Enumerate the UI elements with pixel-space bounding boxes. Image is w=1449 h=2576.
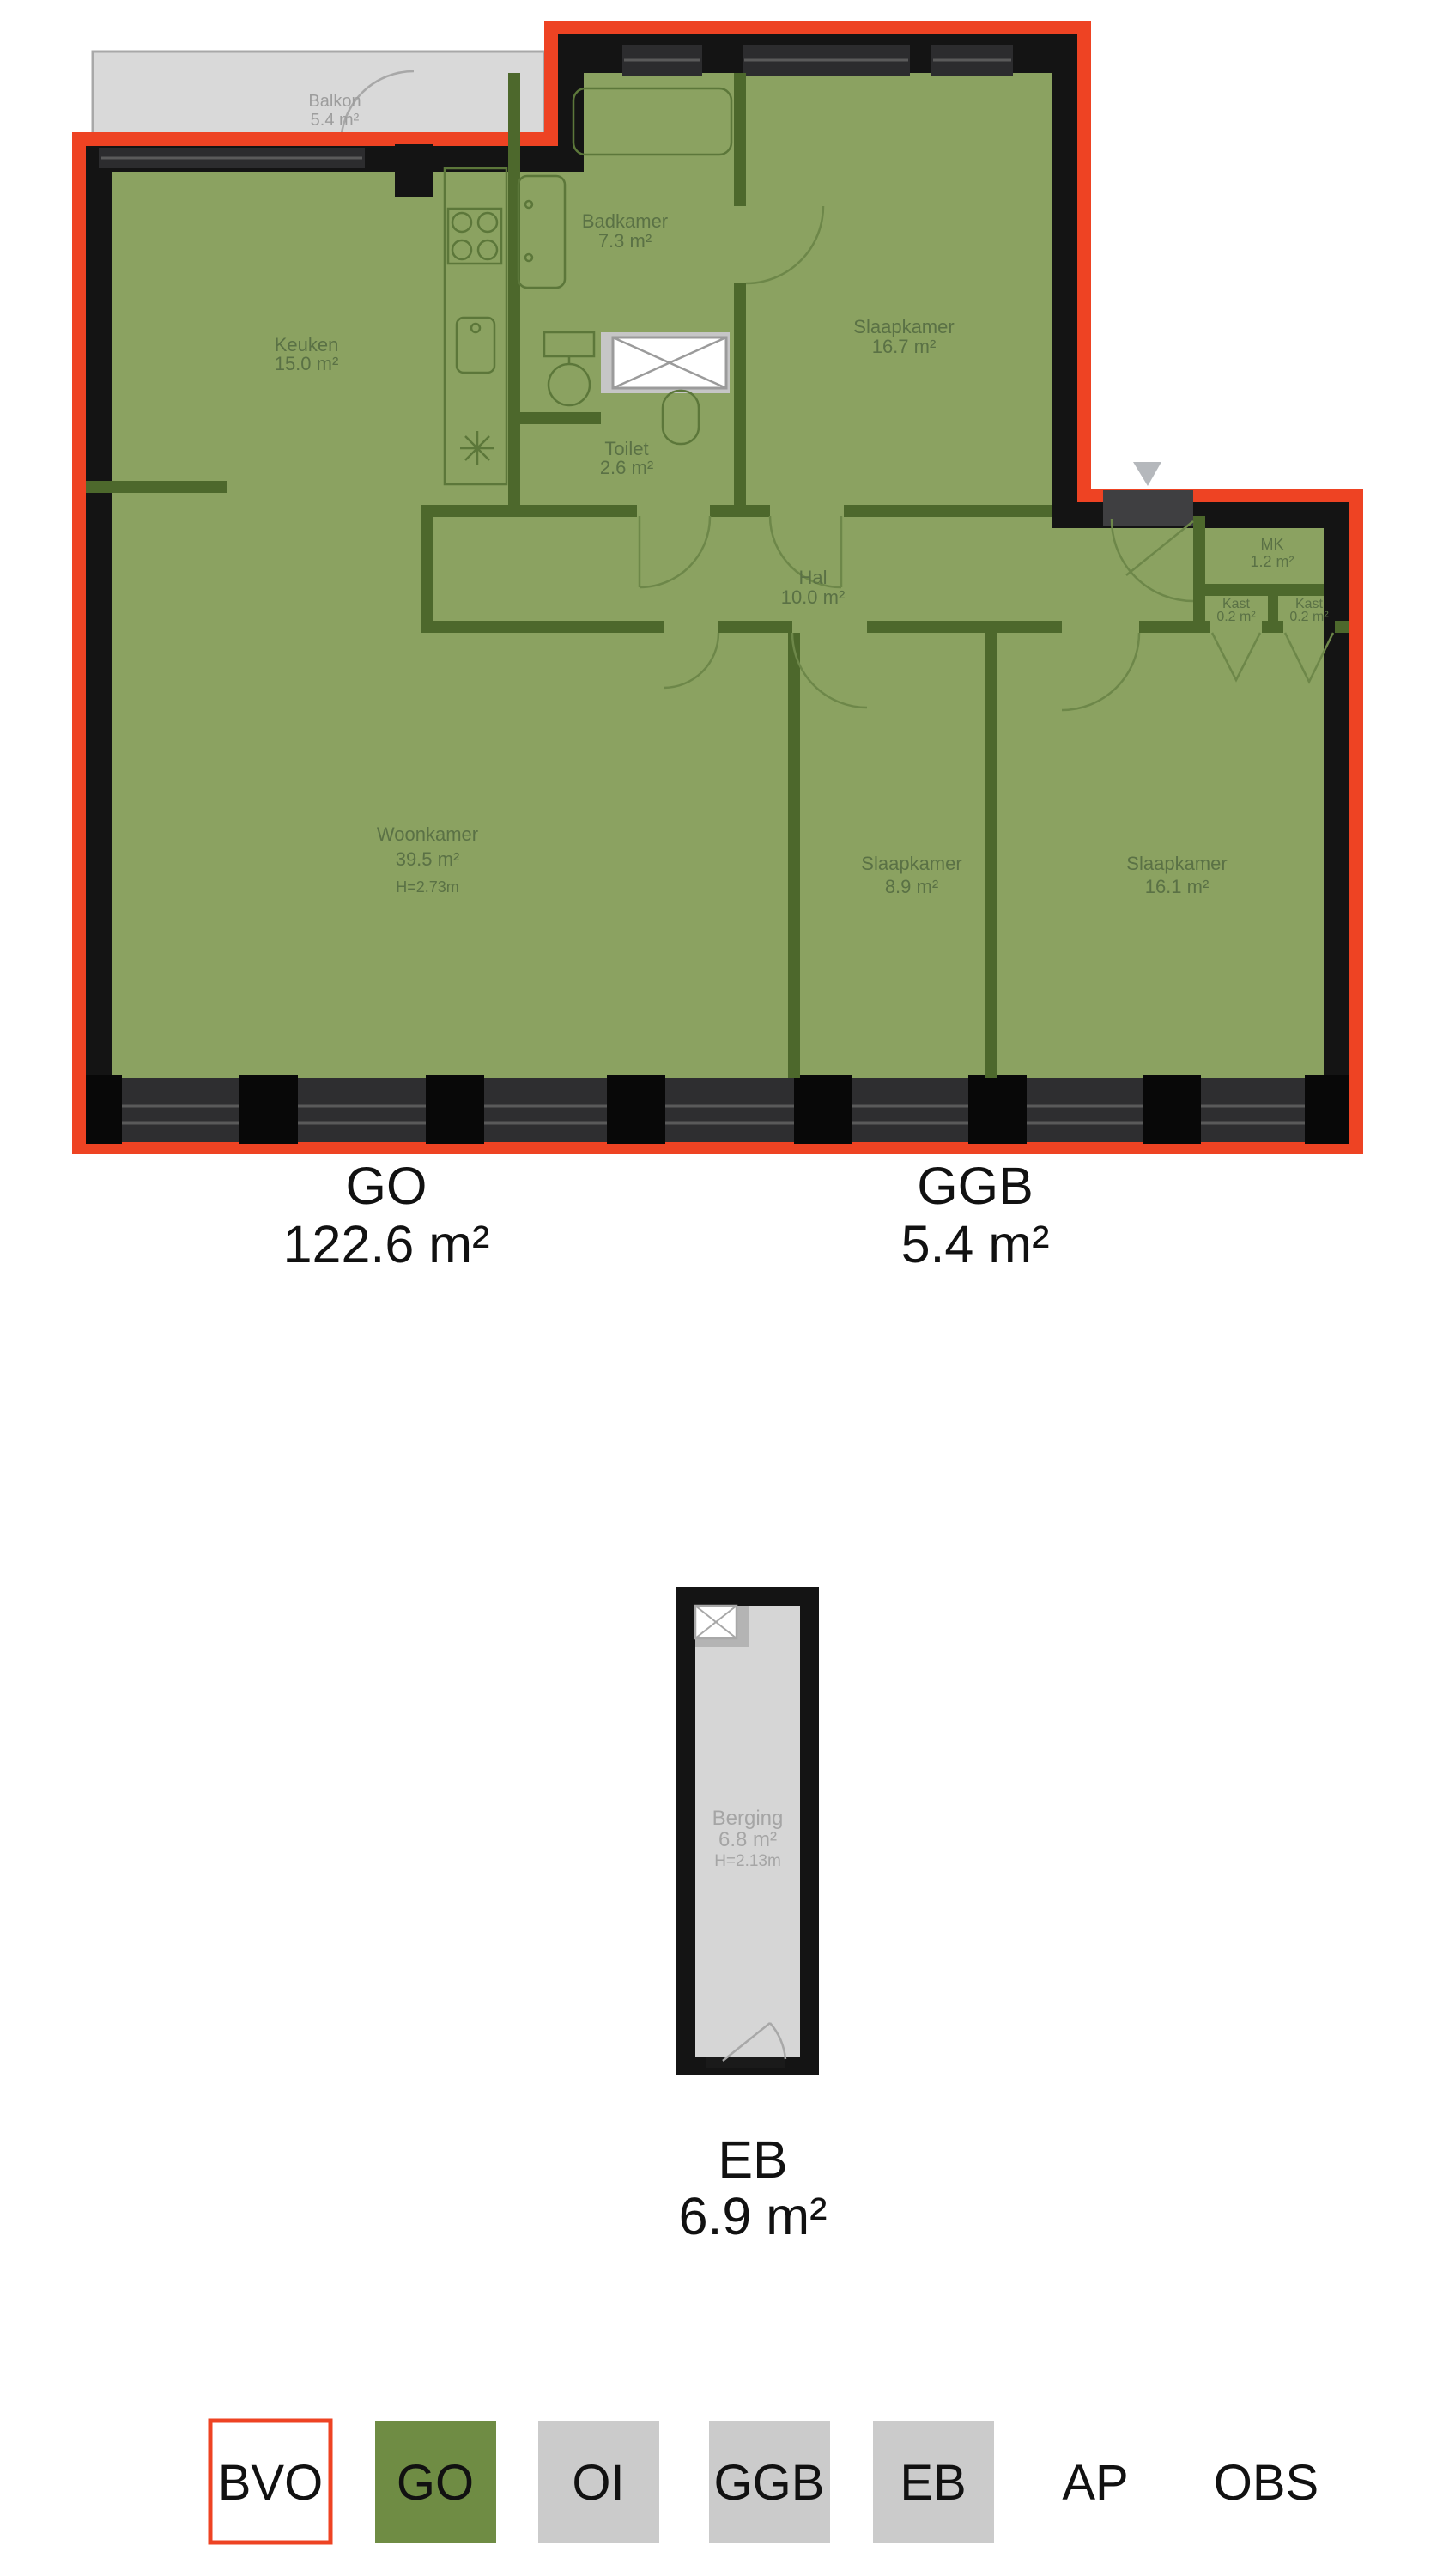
legend-item-ggb[interactable]: GGB xyxy=(709,2421,830,2543)
legend-item-eb[interactable]: EB xyxy=(873,2421,994,2543)
room-slaapkamer3-area: 16.1 m² xyxy=(1145,876,1210,897)
entrance-triangle-icon xyxy=(1133,462,1161,486)
top-windows xyxy=(622,45,1013,76)
total-ggb-code: GGB xyxy=(917,1157,1034,1215)
room-badkamer-area: 7.3 m² xyxy=(598,230,652,252)
total-go-area: 122.6 m² xyxy=(283,1215,490,1273)
room-berging-area: 6.8 m² xyxy=(718,1828,777,1851)
room-mk-area: 1.2 m² xyxy=(1250,553,1294,570)
legend-label-ggb: GGB xyxy=(714,2455,825,2511)
go-area-fill xyxy=(112,73,1324,1115)
room-hal-area: 10.0 m² xyxy=(781,586,846,608)
legend-label-ap: AP xyxy=(1062,2455,1128,2511)
legend-label-eb: EB xyxy=(900,2455,966,2511)
storage-shaft xyxy=(695,1606,749,1647)
room-toilet-area: 2.6 m² xyxy=(600,457,653,478)
room-kast2-area: 0.2 m² xyxy=(1289,610,1329,624)
room-woonkamer-height: H=2.73m xyxy=(396,878,459,896)
legend-item-obs[interactable]: OBS xyxy=(1214,2455,1319,2511)
room-slaapkamer3-name: Slaapkamer xyxy=(1126,853,1227,874)
room-slaapkamer2-area: 8.9 m² xyxy=(885,876,938,897)
room-woonkamer-area: 39.5 m² xyxy=(396,848,460,870)
total-eb-code: EB xyxy=(718,2130,787,2189)
room-hal-name: Hal xyxy=(798,567,827,588)
entrance-opening xyxy=(1103,490,1193,526)
total-eb-area: 6.9 m² xyxy=(679,2187,828,2245)
legend-item-ap[interactable]: AP xyxy=(1062,2455,1128,2511)
room-mk-name: MK xyxy=(1261,536,1284,553)
total-ggb-area: 5.4 m² xyxy=(901,1215,1050,1273)
storage-floorplan: Berging 6.8 m² H=2.13m xyxy=(686,1596,809,2068)
legend-label-oi: OI xyxy=(572,2455,624,2511)
room-berging-name: Berging xyxy=(712,1807,784,1830)
legend-label-bvo: BVO xyxy=(218,2455,324,2511)
room-woonkamer-name: Woonkamer xyxy=(377,823,478,845)
total-go-code: GO xyxy=(346,1157,427,1215)
room-slaapkamer1-area: 16.7 m² xyxy=(872,336,937,357)
legend: BVO GO OI GGB EB AP OBS xyxy=(210,2421,1319,2543)
legend-label-obs: OBS xyxy=(1214,2455,1319,2511)
storage-totals: EB 6.9 m² xyxy=(679,2130,828,2245)
storage-door-threshold xyxy=(706,2057,785,2068)
room-balkon-area: 5.4 m² xyxy=(311,111,360,130)
room-slaapkamer1-name: Slaapkamer xyxy=(853,316,954,337)
legend-label-go: GO xyxy=(397,2455,474,2511)
wall-pier xyxy=(395,144,433,197)
floorplan-report: Balkon 5.4 m² xyxy=(0,0,1449,2576)
room-berging-height: H=2.13m xyxy=(714,1852,781,1870)
room-kast1-area: 0.2 m² xyxy=(1216,610,1256,624)
shaft xyxy=(601,332,730,393)
room-badkamer-name: Badkamer xyxy=(582,210,668,232)
legend-item-go[interactable]: GO xyxy=(375,2421,496,2543)
legend-item-bvo[interactable]: BVO xyxy=(210,2421,330,2543)
bottom-window-band xyxy=(86,1075,1349,1144)
legend-item-oi[interactable]: OI xyxy=(538,2421,659,2543)
mech-vent-icon xyxy=(460,431,494,465)
room-balkon-name: Balkon xyxy=(308,92,361,111)
main-floorplan: Keuken 15.0 m² Badkamer 7.3 m² Slaapkame… xyxy=(72,21,1363,1154)
room-slaapkamer2-name: Slaapkamer xyxy=(861,853,961,874)
main-totals: GO 122.6 m² GGB 5.4 m² xyxy=(283,1157,1050,1273)
room-keuken-area: 15.0 m² xyxy=(275,353,339,374)
